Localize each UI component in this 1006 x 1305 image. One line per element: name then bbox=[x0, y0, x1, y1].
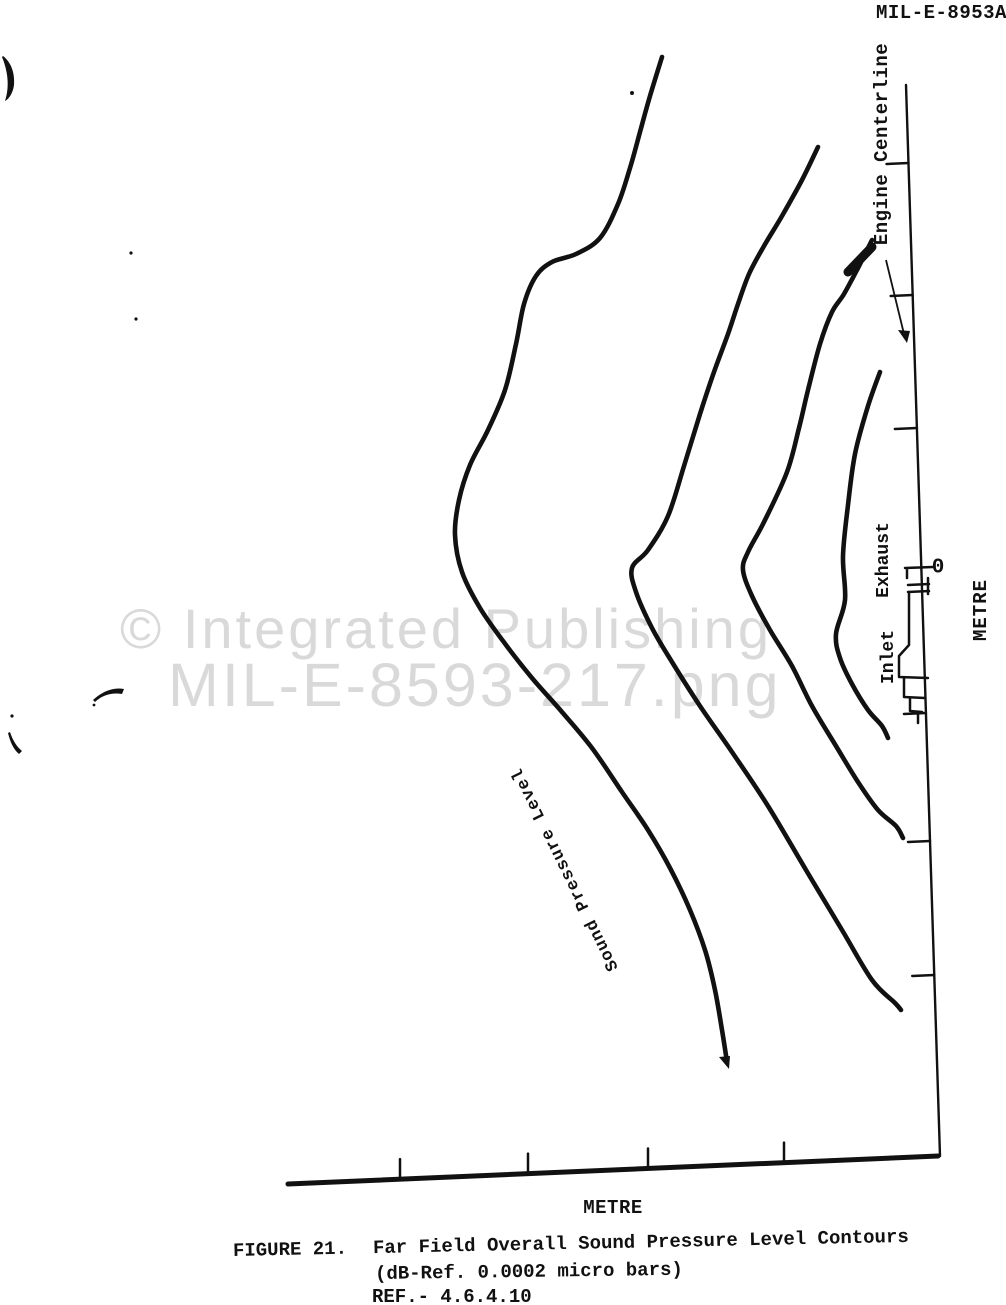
figure-canvas bbox=[0, 0, 1006, 1305]
artifact-dot-4 bbox=[93, 704, 96, 707]
metre-axis-label-vertical: METRE bbox=[970, 579, 992, 641]
centerline-axis-tick-5 bbox=[912, 975, 934, 976]
artifact-dot-3 bbox=[134, 317, 137, 320]
artifact-dot-2 bbox=[129, 251, 132, 254]
scanned-document-page: © Integrated Publishing MIL-E-8593-217.p… bbox=[0, 0, 1006, 1305]
engine-centerline-label: Engine Centerline bbox=[871, 43, 893, 245]
contour-end-arrowhead bbox=[719, 1056, 730, 1069]
metre-axis-label-horizontal: METRE bbox=[583, 1197, 643, 1219]
figure-caption-subtitle: (dB-Ref. 0.0002 micro bars) bbox=[375, 1259, 683, 1285]
figure-caption-reference: REF.- 4.6.4.10 bbox=[372, 1286, 532, 1305]
engine-exhaust-endcap bbox=[905, 567, 933, 578]
figure-number: FIGURE 21. bbox=[233, 1238, 347, 1262]
engine-schematic bbox=[899, 567, 933, 723]
bottom-axis bbox=[288, 1156, 938, 1184]
engine-nozzle-bars bbox=[908, 578, 929, 594]
centerline-axis-tick-4 bbox=[908, 841, 930, 842]
inlet-label: Inlet bbox=[879, 630, 899, 684]
station-zero-tick-label: 0 bbox=[932, 557, 945, 580]
exhaust-label: Exhaust bbox=[874, 522, 894, 598]
scan-artifacts bbox=[2, 56, 634, 754]
artifact-crescent-top-left bbox=[2, 56, 14, 101]
contour-2 bbox=[631, 147, 901, 1010]
centerline-axis-tick-3 bbox=[904, 713, 926, 714]
arrowhead-icon bbox=[898, 330, 910, 343]
artifact-swoosh-left bbox=[93, 689, 124, 702]
centerline-axis bbox=[906, 85, 940, 1156]
engine-inlet-brackets bbox=[904, 678, 925, 723]
artifact-dot-1 bbox=[630, 91, 634, 95]
centerline-axis-tick-2 bbox=[895, 428, 917, 429]
artifact-comma-left bbox=[8, 732, 22, 754]
contour-plot bbox=[288, 57, 940, 1184]
artifact-dot-5 bbox=[10, 714, 13, 717]
